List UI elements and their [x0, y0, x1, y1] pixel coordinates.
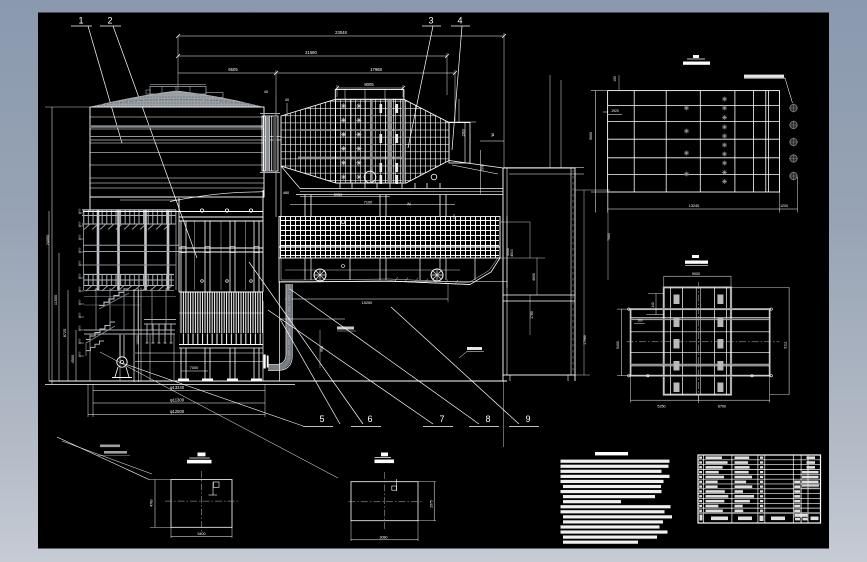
svg-text:9111: 9111	[784, 341, 788, 348]
svg-text:6700: 6700	[718, 405, 726, 409]
svg-text:1500: 1500	[78, 286, 82, 292]
svg-text:10600: 10600	[136, 335, 140, 345]
svg-text:8005: 8005	[364, 82, 374, 87]
svg-text:1500: 1500	[78, 234, 82, 240]
svg-text:4780: 4780	[150, 499, 154, 507]
svg-text:4: 4	[457, 16, 462, 26]
svg-text:1500: 1500	[78, 208, 82, 214]
svg-text:8725: 8725	[63, 329, 67, 337]
svg-text:φ12500: φ12500	[170, 409, 185, 414]
svg-text:1500: 1500	[78, 351, 82, 357]
svg-text:5400: 5400	[198, 532, 206, 536]
svg-text:4500: 4500	[510, 249, 514, 257]
svg-text:1500: 1500	[78, 221, 82, 227]
svg-text:40: 40	[285, 98, 289, 102]
svg-text:μ: μ	[492, 132, 495, 138]
svg-text:1500: 1500	[78, 325, 82, 331]
svg-text:6505: 6505	[228, 67, 238, 72]
svg-text:4500: 4500	[71, 355, 75, 363]
svg-text:N: N	[407, 202, 410, 207]
svg-text:3: 3	[428, 16, 433, 26]
svg-text:1780: 1780	[530, 311, 534, 319]
svg-text:21580: 21580	[305, 50, 317, 55]
svg-text:140: 140	[651, 302, 655, 308]
svg-text:1500: 1500	[78, 338, 82, 344]
svg-text:1500: 1500	[78, 247, 82, 253]
svg-text:1500: 1500	[78, 312, 82, 318]
svg-text:480: 480	[283, 191, 289, 195]
svg-text:160: 160	[637, 319, 643, 323]
svg-text:2575: 2575	[429, 500, 433, 508]
svg-text:23048: 23048	[335, 30, 347, 35]
svg-text:2: 2	[107, 16, 112, 26]
svg-text:150: 150	[613, 76, 617, 82]
svg-text:13240: 13240	[689, 204, 700, 208]
svg-text:1500: 1500	[481, 164, 485, 172]
svg-text:1: 1	[78, 16, 83, 26]
svg-text:9: 9	[525, 414, 530, 424]
svg-text:5950: 5950	[334, 193, 342, 197]
svg-text:15250: 15250	[362, 301, 373, 305]
svg-text:7000: 7000	[607, 233, 611, 241]
svg-text:5400: 5400	[616, 341, 620, 349]
svg-text:8: 8	[485, 414, 490, 424]
svg-text:3080: 3080	[380, 535, 388, 539]
svg-text:9000: 9000	[589, 132, 593, 140]
svg-text:17968: 17968	[370, 67, 382, 72]
svg-text:φ11300: φ11300	[170, 398, 185, 403]
svg-text:5250: 5250	[657, 405, 665, 409]
svg-text:1500: 1500	[78, 273, 82, 279]
svg-text:40: 40	[264, 90, 268, 94]
svg-text:17980: 17980	[583, 335, 587, 345]
svg-text:7100: 7100	[364, 201, 372, 205]
svg-text:6: 6	[367, 414, 372, 424]
svg-text:7: 7	[439, 414, 444, 424]
svg-text:11500: 11500	[54, 295, 58, 305]
svg-text:7000: 7000	[190, 366, 198, 370]
svg-text:1920: 1920	[611, 109, 619, 113]
svg-text:24050: 24050	[46, 235, 50, 246]
svg-text:4600: 4600	[532, 273, 536, 281]
svg-text:1500: 1500	[78, 299, 82, 305]
svg-text:1200: 1200	[780, 204, 788, 208]
svg-text:5: 5	[319, 414, 324, 424]
svg-text:φ13240: φ13240	[170, 385, 185, 390]
svg-text:9000: 9000	[692, 272, 700, 276]
svg-text:1500: 1500	[78, 260, 82, 266]
svg-text:1560: 1560	[462, 129, 466, 137]
